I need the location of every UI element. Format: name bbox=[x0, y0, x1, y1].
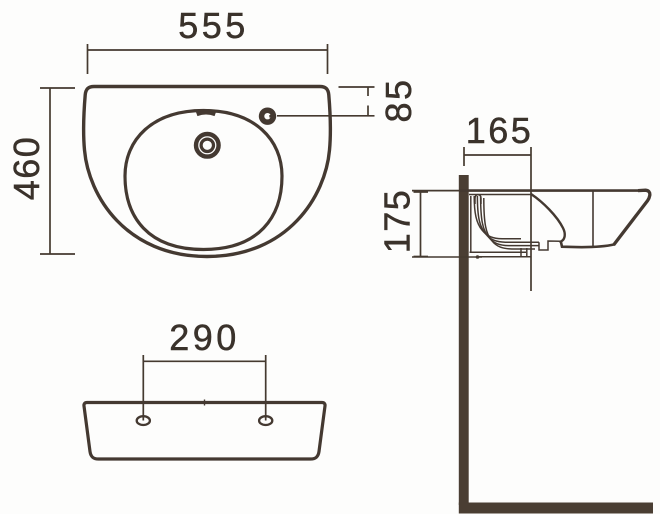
svg-text:165: 165 bbox=[466, 110, 534, 151]
svg-text:175: 175 bbox=[377, 189, 418, 254]
svg-text:290: 290 bbox=[169, 317, 240, 358]
svg-text:85: 85 bbox=[378, 77, 419, 122]
svg-text:460: 460 bbox=[6, 136, 47, 201]
svg-text:555: 555 bbox=[178, 5, 249, 46]
